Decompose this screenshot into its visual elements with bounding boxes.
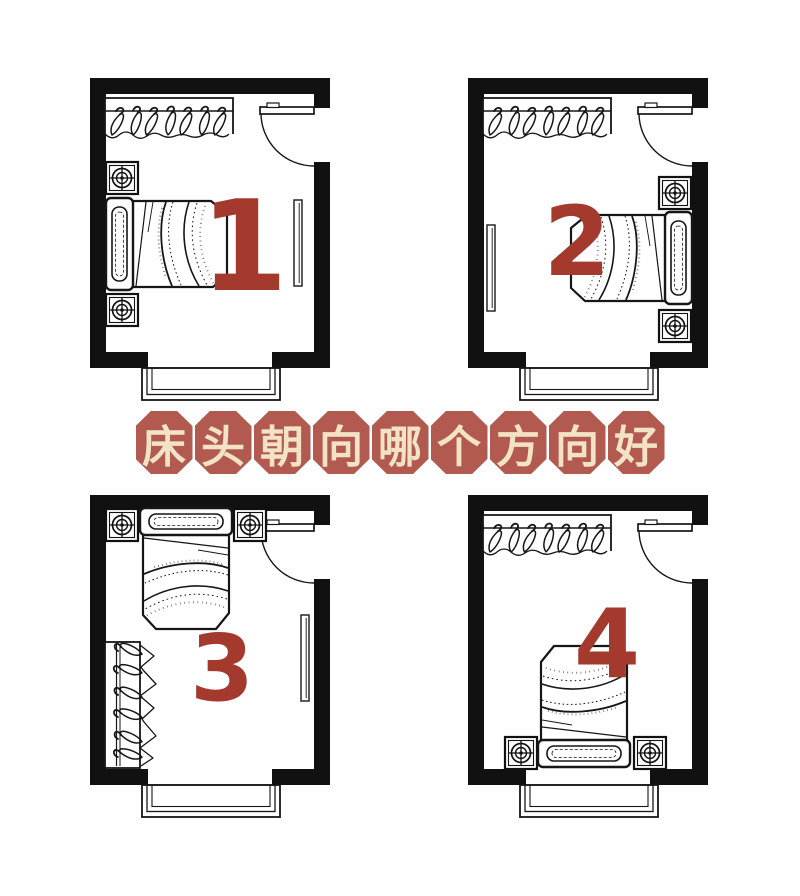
room-number-4: 4	[574, 590, 640, 700]
banner-char-tile: 床	[136, 411, 193, 474]
nightstand-icon	[106, 162, 138, 194]
window-icon	[301, 615, 309, 701]
floor-plan-room-3: 3	[90, 495, 330, 820]
floor-plan-room-4: 4	[468, 495, 708, 820]
nightstand-icon	[106, 294, 138, 326]
wardrobe-icon	[483, 98, 611, 138]
door-icon	[260, 103, 314, 166]
nightstand-icon	[634, 737, 666, 769]
wardrobe-icon	[105, 98, 233, 138]
door-icon	[260, 520, 314, 583]
banner-char-tile: 好	[608, 411, 665, 474]
door-icon	[638, 520, 692, 583]
bay-window-icon	[142, 785, 280, 817]
banner-char-tile: 个	[431, 411, 488, 474]
window-icon	[294, 200, 302, 286]
wardrobe-icon	[105, 642, 156, 768]
bay-window-icon	[520, 368, 658, 400]
nightstand-icon	[234, 509, 266, 541]
room-number-2: 2	[544, 186, 611, 298]
banner-char-tile: 向	[549, 411, 606, 474]
wardrobe-icon	[483, 515, 611, 555]
poster-canvas: 1 2 床 头 朝 向 哪 个 方 向 好 3	[0, 0, 800, 896]
banner-char-tile: 朝	[254, 411, 311, 474]
nightstand-icon	[659, 310, 691, 342]
banner-char-tile: 头	[195, 411, 252, 474]
banner-char-tile: 向	[313, 411, 370, 474]
title-banner: 床 头 朝 向 哪 个 方 向 好	[0, 411, 800, 474]
bay-window-icon	[520, 785, 658, 817]
banner-char-tile: 方	[490, 411, 547, 474]
floor-plan-room-2: 2	[468, 78, 708, 403]
nightstand-icon	[106, 509, 138, 541]
door-icon	[638, 103, 692, 166]
bay-window-icon	[142, 368, 280, 400]
nightstand-icon	[659, 177, 691, 209]
room-number-3: 3	[190, 615, 254, 722]
nightstand-icon	[505, 737, 537, 769]
room-number-1: 1	[200, 173, 288, 320]
floor-plan-room-1: 1	[90, 78, 330, 403]
bed-icon	[140, 508, 232, 629]
banner-char-tile: 哪	[372, 411, 429, 474]
window-icon	[487, 225, 495, 311]
